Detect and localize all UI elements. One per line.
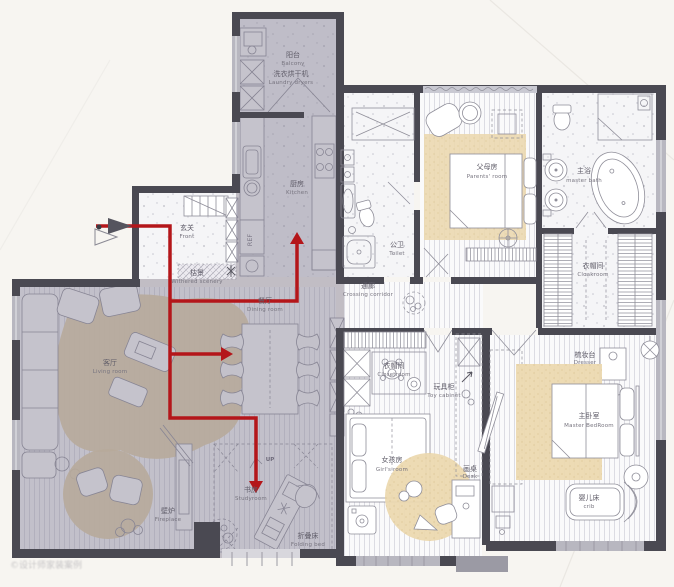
label-folding-en: Folding bed [291, 542, 325, 548]
label-masterbed-zh: 主卧室 [579, 411, 600, 420]
label-balcony-en: Balcony [281, 61, 305, 67]
label-cloakroom-en: Cloakroom [577, 272, 608, 278]
tv-cabinet-icon [466, 248, 536, 261]
label-desk-zh: 画桌 [463, 464, 477, 473]
label-toycab-zh: 玩具柜 [434, 382, 455, 391]
label-folding-zh: 折叠床 [298, 531, 319, 540]
label-front-en: Front [180, 234, 196, 240]
label-toilet-en: Toilet [388, 251, 405, 257]
speaker-icon [348, 506, 376, 534]
floor-plan-screenshot: REF UP [0, 0, 674, 587]
label-closetroom-zh: 衣帽间 [384, 361, 405, 370]
label-masterbath-en: master bath [566, 178, 602, 184]
label-laundry-en: Laundry dryers [269, 80, 313, 86]
label-withered-en: Withered scenery [171, 279, 223, 285]
label-dresser-en: Dresser [574, 360, 597, 366]
label-parents-en: Parents' room [467, 174, 508, 180]
label-crib-zh: 婴儿床 [579, 493, 600, 502]
label-corridor-en: Crossing corridor [343, 292, 394, 298]
label-girls-en: Girl's room [376, 467, 408, 473]
toilet-icon [553, 105, 571, 130]
label-fireplace-zh: 壁炉 [161, 506, 175, 515]
watermark: ©设计师家装案例 [10, 559, 82, 571]
label-desk-en: Desk [463, 474, 478, 480]
label-parents-zh: 父母房 [477, 162, 498, 171]
label-study-zh: 书房 [244, 485, 258, 494]
pebble-strip [178, 264, 236, 279]
parents-window [423, 86, 537, 93]
label-balcony-zh: 阳台 [286, 50, 300, 59]
label-fireplace-en: Fireplace [155, 517, 182, 523]
label-dining-zh: 餐厅 [258, 296, 272, 305]
label-cloakroom-zh: 衣帽间 [583, 261, 604, 270]
label-girls-zh: 女孩房 [382, 455, 403, 464]
label-kitchen-en: Kitchen [286, 190, 308, 196]
floor-plan-svg: REF UP [0, 0, 674, 587]
label-toycab-en: Toy cabinet [426, 393, 461, 399]
desk-icon [452, 480, 480, 538]
label-withered-zh: 枯景 [190, 268, 204, 277]
hanging-rack-icon [344, 332, 426, 348]
label-closetroom-en: Closetroom [377, 372, 410, 378]
label-dresser-zh: 梳妆台 [575, 350, 596, 359]
label-corridor-zh: 通廊 [361, 281, 375, 290]
label-kitchen-zh: 厨房 [290, 179, 304, 188]
label-study-en: Studyroom [235, 496, 267, 502]
label-laundry-zh: 洗衣烘干机 [274, 69, 309, 78]
label-crib-en: crib [583, 504, 594, 510]
ceiling-fan-icon [499, 229, 517, 247]
label-living-en: Living room [93, 369, 128, 375]
label-masterbath-zh: 主浴 [577, 166, 591, 175]
label-masterbed-en: Master BedRoom [564, 423, 614, 429]
label-toilet-zh: 公卫 [390, 241, 404, 249]
label-front-zh: 玄关 [180, 223, 194, 232]
label-living-zh: 客厅 [103, 358, 117, 367]
shoe-cabinet-icon [184, 196, 228, 216]
label-dining-en: Dining room [247, 307, 283, 313]
